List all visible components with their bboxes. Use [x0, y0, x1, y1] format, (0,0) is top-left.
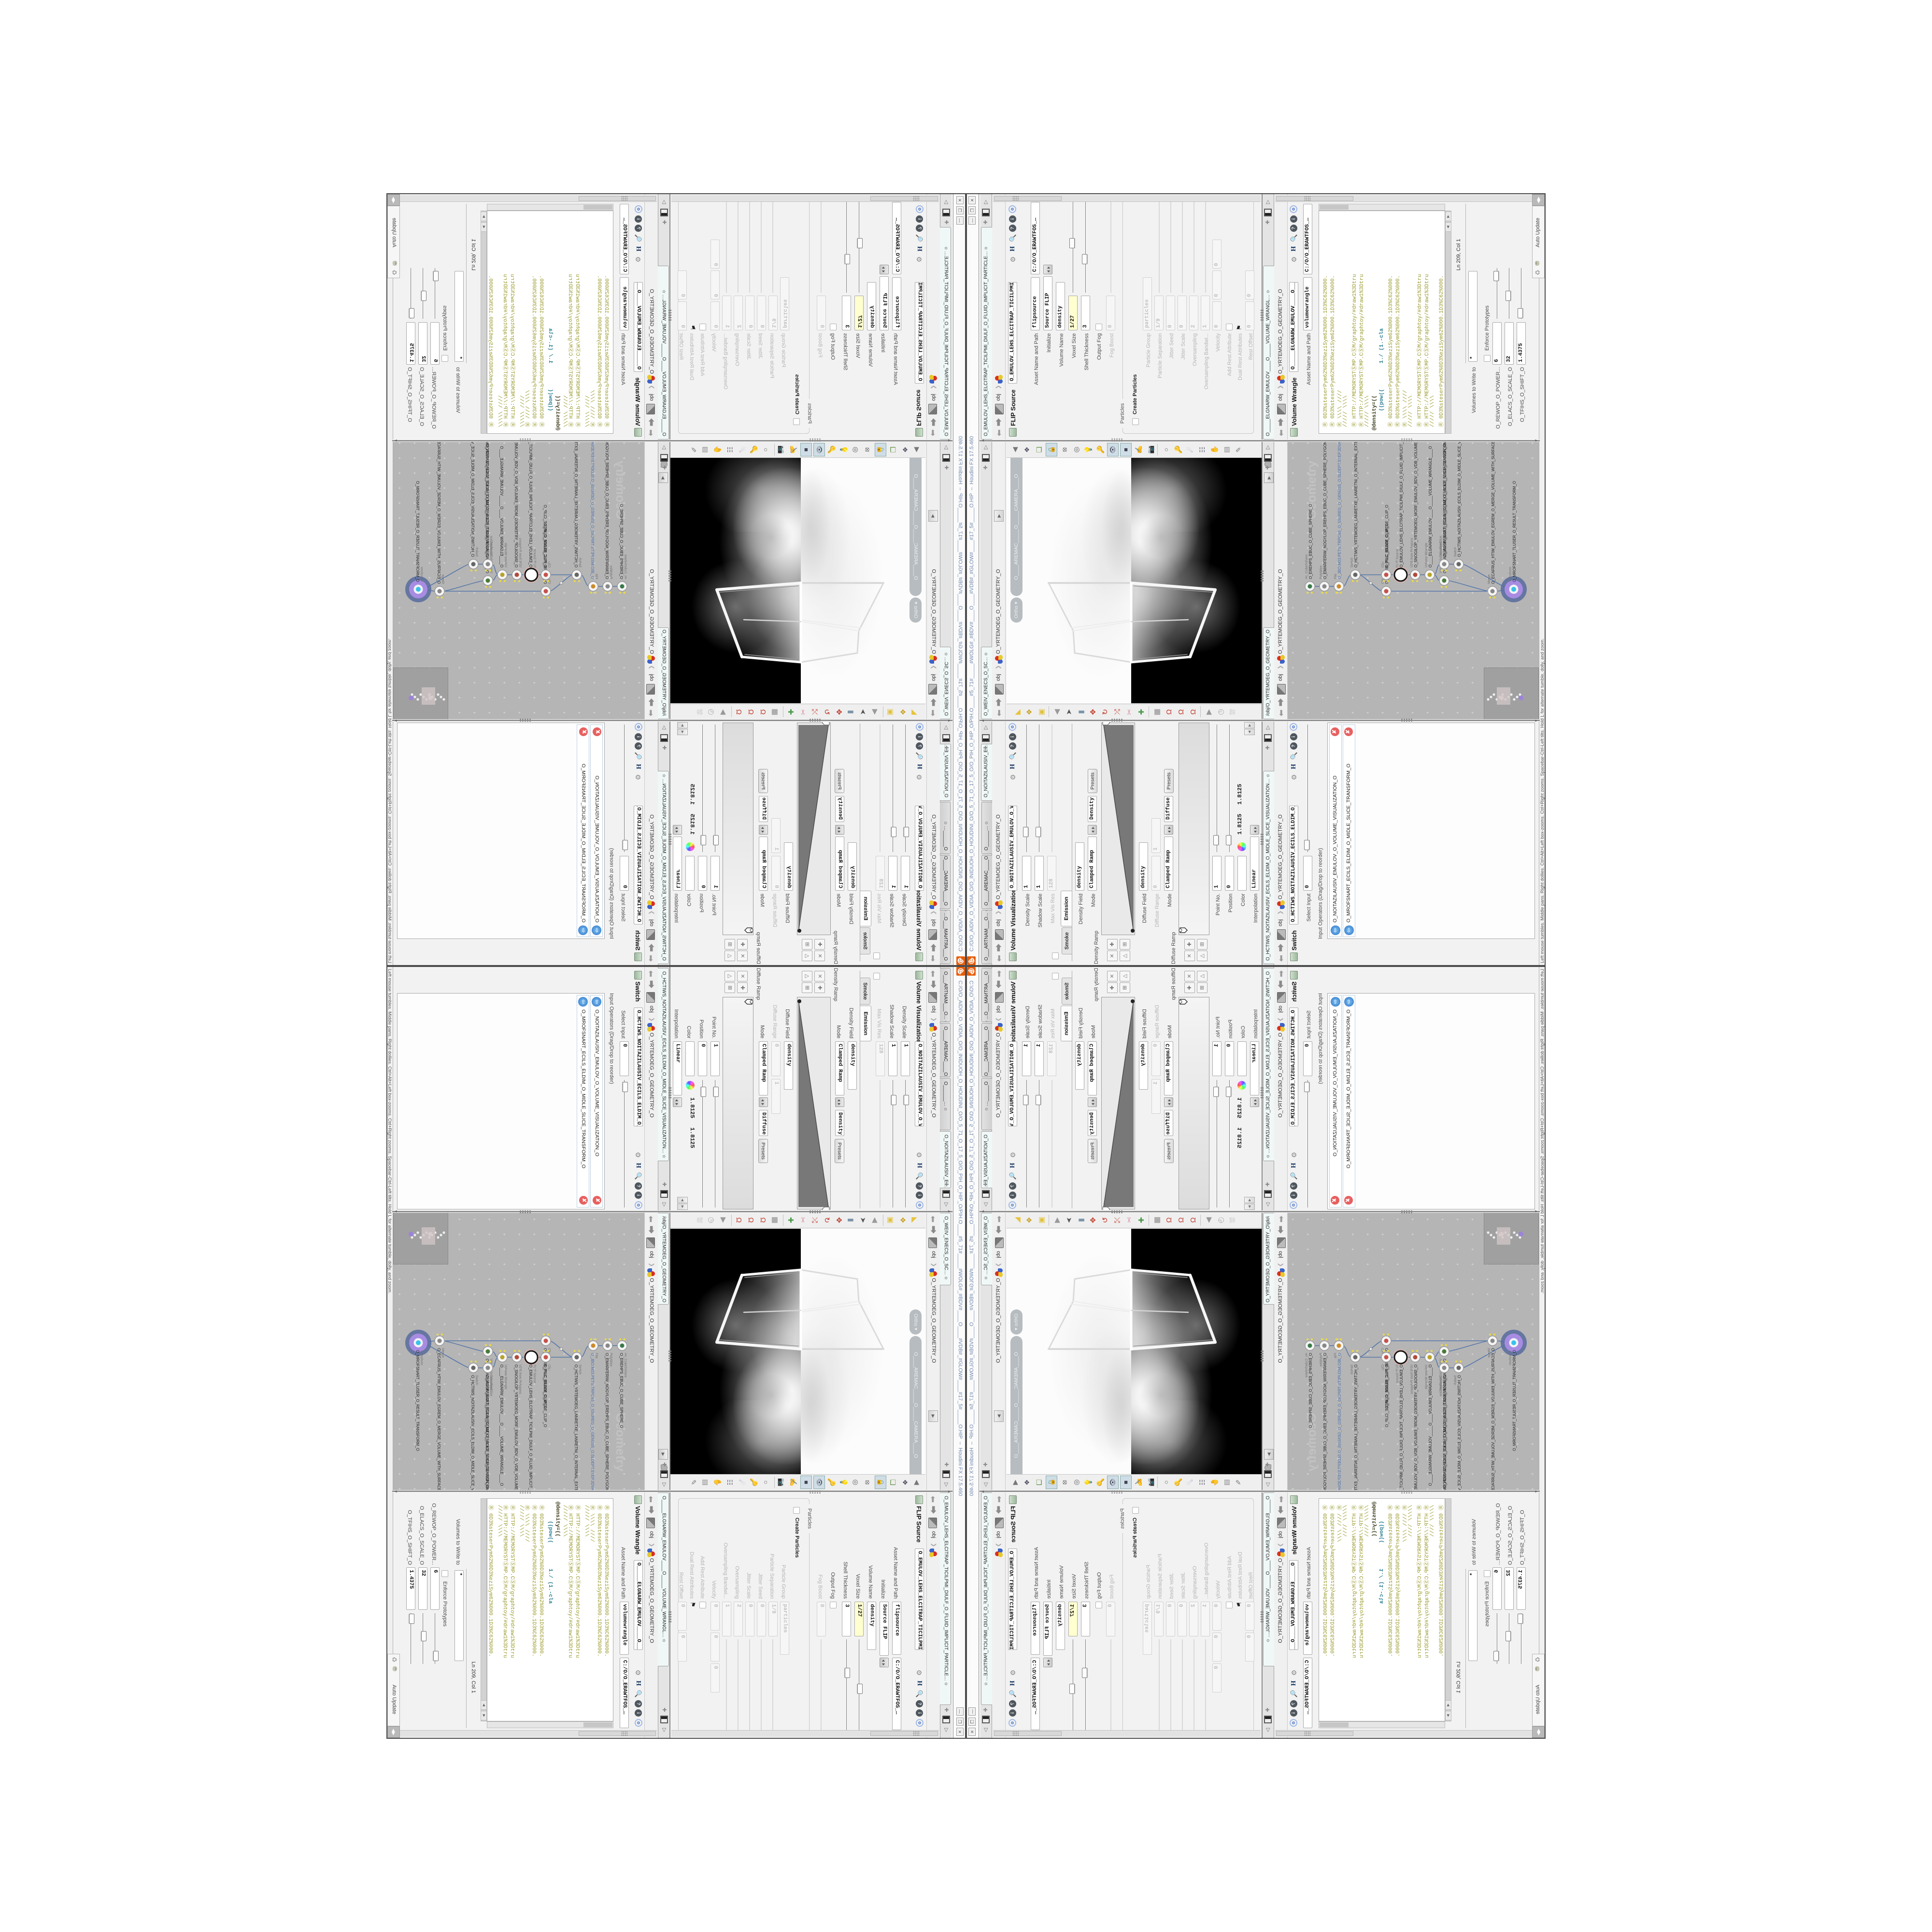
svg-text:+: +: [1291, 577, 1295, 579]
svg-text:+: +: [1350, 607, 1355, 609]
svg-text:+: +: [502, 667, 507, 669]
svg-text:an_CubeSphere: an_CubeSphere: [624, 554, 627, 579]
svg-text:+: +: [1470, 711, 1475, 714]
svg-text:+: +: [1335, 1323, 1340, 1325]
svg-text:+: +: [1470, 472, 1475, 474]
svg-text:+: +: [607, 1278, 611, 1280]
svg-text:+: +: [1291, 682, 1295, 684]
svg-text:+: +: [1291, 442, 1295, 444]
svg-text:+: +: [532, 1218, 537, 1221]
svg-text:+: +: [487, 1278, 492, 1280]
svg-text:+: +: [637, 1338, 641, 1340]
svg-text:+: +: [1485, 1473, 1490, 1475]
svg-text:+: +: [547, 711, 552, 714]
svg-text:VDB from Polygons: VDB from Polygons: [1410, 538, 1414, 568]
svg-text:+: +: [577, 607, 582, 609]
svg-text:+: +: [577, 622, 582, 624]
svg-text:+: +: [547, 547, 552, 549]
svg-text:+: +: [427, 517, 432, 519]
svg-text:+: +: [637, 502, 641, 504]
svg-text:Volume Wrangle: Volume Wrangle: [1425, 1364, 1428, 1389]
svg-text:+: +: [1306, 1488, 1310, 1490]
svg-text:+: +: [592, 1263, 597, 1265]
svg-text:+: +: [1470, 442, 1475, 444]
svg-text:+: +: [1321, 637, 1325, 639]
svg-text:+: +: [622, 1488, 626, 1490]
svg-text:+: +: [1530, 1473, 1535, 1475]
svg-text:+: +: [1530, 1368, 1535, 1370]
svg-text:+: +: [1500, 1278, 1505, 1280]
svg-text:+: +: [1350, 696, 1355, 699]
svg-text:O_HCTIWS_YRTEMOEG_LANRETXE_LAN: O_HCTIWS_YRTEMOEG_LANRETXE_LANRETNI_O_IN…: [1354, 1364, 1358, 1491]
svg-text:O_EREHPS_EBUC_O_CUBE_SPHERE_O: O_EREHPS_EBUC_O_CUBE_SPHERE_O: [1308, 504, 1313, 579]
svg-text:+: +: [622, 1233, 626, 1236]
svg-text:+: +: [472, 667, 477, 669]
svg-text:+: +: [607, 1263, 611, 1265]
svg-text:+: +: [1291, 502, 1295, 504]
svg-text:+: +: [562, 517, 567, 519]
svg-text:+: +: [547, 637, 552, 639]
svg-text:+: +: [1515, 607, 1520, 609]
svg-text:Switch: Switch: [1350, 1364, 1354, 1375]
svg-text:+: +: [457, 517, 462, 519]
svg-text:+: +: [637, 1473, 641, 1475]
svg-text:+: +: [547, 517, 552, 519]
svg-text:+: +: [457, 711, 462, 714]
svg-text:+: +: [1425, 682, 1430, 684]
svg-text:+: +: [562, 1308, 567, 1310]
svg-text:+: +: [562, 1368, 567, 1370]
svg-text:+: +: [1291, 547, 1295, 549]
svg-text:+: +: [562, 607, 567, 609]
svg-text:O_EMARFERIW_NOGYLOP_EREHPS_EBU: O_EMARFERIW_NOGYLOP_EREHPS_EBUC_O_CUBE_S…: [605, 1353, 609, 1491]
svg-text:+: +: [397, 1368, 402, 1370]
svg-text:+: +: [1365, 1413, 1370, 1415]
svg-text:+: +: [1500, 547, 1505, 549]
svg-text:+: +: [577, 1248, 582, 1250]
svg-text:+: +: [457, 667, 462, 669]
svg-text:+: +: [532, 682, 537, 684]
svg-text:+: +: [607, 696, 611, 699]
svg-text:+: +: [1410, 682, 1415, 684]
svg-text:+: +: [1350, 1248, 1355, 1250]
svg-text:+: +: [457, 1278, 462, 1280]
svg-text:+: +: [397, 1428, 402, 1430]
svg-text:+: +: [517, 592, 522, 594]
svg-text:+: +: [502, 1248, 507, 1250]
svg-text:+: +: [607, 1218, 611, 1221]
svg-text:O_HCTIWS_YRTEMOEG_LANRETXE_LAN: O_HCTIWS_YRTEMOEG_LANRETXE_LANRETNI_O_IN…: [574, 441, 578, 568]
svg-text:+: +: [1291, 1413, 1295, 1415]
svg-text:+: +: [412, 652, 417, 654]
svg-text:+: +: [532, 622, 537, 624]
svg-text:+: +: [1321, 1263, 1325, 1265]
svg-text:O_SNOGILOP_YRTEMOEG_MORF_EMULO: O_SNOGILOP_YRTEMOEG_MORF_EMULOV_BDV_O_VD…: [514, 441, 518, 568]
svg-text:+: +: [1455, 682, 1460, 684]
svg-text:+: +: [1455, 1323, 1460, 1325]
svg-text:+: +: [1455, 1308, 1460, 1310]
svg-text:+: +: [1425, 1488, 1430, 1490]
svg-text:+: +: [1335, 607, 1340, 609]
svg-text:+: +: [1335, 1293, 1340, 1295]
svg-text:+: +: [1335, 1233, 1340, 1236]
svg-text:+: +: [1455, 1248, 1460, 1250]
svg-text:+: +: [637, 1293, 641, 1295]
svg-text:+: +: [412, 1308, 417, 1310]
svg-text:+: +: [1425, 1323, 1430, 1325]
svg-text:+: +: [517, 622, 522, 624]
svg-text:+: +: [457, 1473, 462, 1475]
svg-text:+: +: [592, 1248, 597, 1250]
svg-text:+: +: [487, 711, 492, 714]
svg-text:+: +: [1291, 1338, 1295, 1340]
svg-text:+: +: [622, 1473, 626, 1475]
svg-text:+: +: [427, 1368, 432, 1370]
svg-text:+: +: [1440, 1293, 1445, 1295]
svg-text:+: +: [427, 1353, 432, 1355]
svg-text:+: +: [577, 711, 582, 714]
svg-text:+: +: [1500, 472, 1505, 474]
svg-text:+: +: [1321, 1308, 1325, 1310]
svg-text:O_PILC_ELDIM_O_MIDLE_CLIP_O: O_PILC_ELDIM_O_MIDLE_CLIP_O: [1385, 1364, 1389, 1427]
svg-text:+: +: [487, 607, 492, 609]
svg-text:+: +: [1470, 1293, 1475, 1295]
svg-text:+: +: [442, 1308, 447, 1310]
svg-text:+: +: [457, 547, 462, 549]
svg-text:+: +: [1485, 457, 1490, 459]
svg-text:+: +: [1500, 1383, 1505, 1385]
svg-text:+: +: [577, 1263, 582, 1265]
svg-text:+: +: [1530, 577, 1535, 579]
svg-text:+: +: [1335, 1248, 1340, 1250]
svg-text:+: +: [1380, 711, 1385, 714]
svg-text:+: +: [1440, 667, 1445, 669]
svg-text:+: +: [1410, 1308, 1415, 1310]
svg-text:+: +: [1530, 1398, 1535, 1400]
svg-text:+: +: [442, 457, 447, 459]
svg-text:+: +: [1425, 442, 1430, 444]
svg-text:+: +: [397, 1383, 402, 1385]
svg-text:+: +: [1350, 1308, 1355, 1310]
svg-text:File: File: [1334, 1353, 1337, 1358]
svg-text:+: +: [1500, 1488, 1505, 1490]
svg-text:+: +: [1440, 1233, 1445, 1236]
svg-text:+: +: [637, 711, 641, 714]
svg-text:+: +: [1321, 711, 1325, 714]
svg-text:+: +: [397, 472, 402, 474]
svg-text:+: +: [1291, 1293, 1295, 1295]
svg-text:+: +: [637, 577, 641, 579]
svg-text:O_MROFSNART_ECILS_ELDIM_O_MIDL: O_MROFSNART_ECILS_ELDIM_O_MIDLE_SLICE_TR…: [485, 441, 489, 557]
svg-text:+: +: [517, 652, 522, 654]
svg-text:+: +: [1380, 442, 1385, 444]
svg-text:+: +: [1395, 1278, 1400, 1280]
svg-text:+: +: [1485, 637, 1490, 639]
svg-text:+: +: [1365, 1263, 1370, 1265]
svg-text:+: +: [1365, 1218, 1370, 1221]
svg-text:+: +: [637, 667, 641, 669]
svg-text:+: +: [1410, 667, 1415, 669]
svg-text:PolyWire: PolyWire: [609, 1353, 612, 1366]
svg-text:+: +: [1321, 607, 1325, 609]
svg-text:+: +: [562, 696, 567, 699]
svg-text:+: +: [1530, 622, 1535, 624]
svg-text:+: +: [1395, 622, 1400, 624]
svg-text:+: +: [1350, 1233, 1355, 1236]
svg-text:+: +: [592, 637, 597, 639]
svg-text:+: +: [1500, 532, 1505, 534]
svg-text:+: +: [532, 1233, 537, 1236]
svg-text:+: +: [1321, 1248, 1325, 1250]
svg-text:+: +: [457, 487, 462, 489]
svg-text:+: +: [1395, 1308, 1400, 1310]
svg-text:+: +: [1485, 547, 1490, 549]
svg-text:+: +: [1306, 1323, 1310, 1325]
svg-text:+: +: [1350, 667, 1355, 669]
svg-text:+: +: [502, 1338, 507, 1340]
svg-text:+: +: [457, 1323, 462, 1325]
svg-text:+: +: [1500, 652, 1505, 654]
svg-text:+: +: [487, 696, 492, 699]
svg-text:+: +: [1455, 607, 1460, 609]
svg-text:+: +: [1440, 682, 1445, 684]
svg-text:+: +: [1395, 1338, 1400, 1340]
svg-text:+: +: [487, 1263, 492, 1265]
svg-text:+: +: [1365, 472, 1370, 474]
svg-text:+: +: [472, 1338, 477, 1340]
svg-text:+: +: [592, 682, 597, 684]
svg-text:+: +: [472, 577, 477, 579]
svg-text:+: +: [1485, 517, 1490, 519]
svg-text:+: +: [562, 592, 567, 594]
svg-text:+: +: [442, 1443, 447, 1445]
svg-text:+: +: [1380, 696, 1385, 699]
svg-text:+: +: [1291, 517, 1295, 519]
svg-text:+: +: [1425, 622, 1430, 624]
svg-text:+: +: [562, 1398, 567, 1400]
svg-text:+: +: [547, 1383, 552, 1385]
svg-text:+: +: [547, 1263, 552, 1265]
svg-text:+: +: [1530, 562, 1535, 564]
svg-text:+: +: [1470, 1278, 1475, 1280]
svg-text:+: +: [1365, 696, 1370, 699]
svg-text:+: +: [1350, 592, 1355, 594]
svg-text:+: +: [562, 652, 567, 654]
svg-text:+: +: [1321, 667, 1325, 669]
svg-text:+: +: [1470, 1368, 1475, 1370]
svg-text:+: +: [592, 1293, 597, 1295]
svg-text:+: +: [1291, 1488, 1295, 1490]
svg-text:+: +: [547, 502, 552, 504]
svg-text:+: +: [1365, 667, 1370, 669]
svg-text:Switch: Switch: [475, 547, 478, 557]
svg-text:+: +: [1530, 457, 1535, 459]
svg-text:Transform: Transform: [420, 567, 423, 582]
svg-text:O_PILC_ELDIM_O_MIDLE_CLIP_O: O_PILC_ELDIM_O_MIDLE_CLIP_O: [543, 1364, 547, 1427]
svg-text:+: +: [1380, 1248, 1385, 1250]
svg-text:+: +: [502, 1233, 507, 1236]
svg-text:+: +: [1440, 637, 1445, 639]
svg-text:+: +: [487, 1248, 492, 1250]
svg-text:+: +: [1485, 1293, 1490, 1295]
svg-text:+: +: [637, 442, 641, 444]
svg-text:+: +: [1306, 1263, 1310, 1265]
svg-text:+: +: [1365, 1428, 1370, 1430]
svg-text:+: +: [412, 622, 417, 624]
svg-text:+: +: [1500, 562, 1505, 564]
svg-text:+: +: [517, 682, 522, 684]
svg-text:+: +: [547, 1218, 552, 1221]
svg-text:+: +: [592, 622, 597, 624]
svg-text:+: +: [1530, 1353, 1535, 1355]
svg-text:+: +: [547, 457, 552, 459]
svg-text:Transform: Transform: [1439, 541, 1443, 557]
svg-text:+: +: [517, 1308, 522, 1310]
svg-text:+: +: [1306, 607, 1310, 609]
svg-text:+: +: [1380, 1233, 1385, 1236]
svg-text:+: +: [1440, 1218, 1445, 1221]
svg-text:+: +: [412, 1293, 417, 1295]
svg-text:FLIP Source: FLIP Source: [533, 549, 536, 568]
svg-text:VDB from Polygons: VDB from Polygons: [1410, 1364, 1414, 1394]
svg-text:an_CubeSphere: an_CubeSphere: [1305, 554, 1308, 579]
svg-text:+: +: [577, 1218, 582, 1221]
svg-text:+: +: [532, 592, 537, 594]
svg-text:+: +: [457, 442, 462, 444]
svg-text:+: +: [1425, 607, 1430, 609]
svg-text:+: +: [1500, 1458, 1505, 1460]
svg-text:+: +: [457, 1488, 462, 1490]
svg-text:+: +: [1395, 667, 1400, 669]
svg-text:+: +: [1410, 1248, 1415, 1250]
svg-text:+: +: [1365, 1473, 1370, 1475]
svg-text:+: +: [502, 1308, 507, 1310]
svg-text:+: +: [1530, 1338, 1535, 1340]
svg-text:File: File: [595, 1353, 598, 1358]
svg-text:+: +: [622, 637, 626, 639]
svg-text:+: +: [442, 1278, 447, 1280]
svg-text:+: +: [1306, 711, 1310, 714]
svg-text:+: +: [412, 442, 417, 444]
svg-text:+: +: [532, 652, 537, 654]
svg-text:+: +: [622, 622, 626, 624]
svg-text:+: +: [607, 1248, 611, 1250]
svg-text:+: +: [427, 1308, 432, 1310]
svg-text:O_SNOGILOP_YRTEMOEG_MORF_EMULO: O_SNOGILOP_YRTEMOEG_MORF_EMULOV_BDV_O_VD…: [514, 1364, 518, 1491]
svg-text:Merge: Merge: [1488, 1348, 1491, 1358]
svg-text:+: +: [637, 1413, 641, 1415]
svg-text:+: +: [1380, 1278, 1385, 1280]
svg-text:+: +: [1410, 1233, 1415, 1236]
svg-text:+: +: [562, 1383, 567, 1385]
svg-text:+: +: [1530, 1293, 1535, 1295]
svg-text:+: +: [562, 502, 567, 504]
svg-text:+: +: [1395, 652, 1400, 654]
svg-text:Volume Wrangle: Volume Wrangle: [1425, 543, 1428, 568]
svg-text:+: +: [457, 577, 462, 579]
svg-text:+: +: [427, 1488, 432, 1490]
svg-text:+: +: [547, 652, 552, 654]
svg-text:+: +: [1335, 696, 1340, 699]
svg-text:+: +: [457, 1443, 462, 1445]
svg-text:+: +: [1335, 1263, 1340, 1265]
svg-text:+: +: [1380, 502, 1385, 504]
svg-text:+: +: [1500, 1398, 1505, 1400]
svg-text:+: +: [562, 1293, 567, 1295]
svg-text:+: +: [637, 472, 641, 474]
svg-text:+: +: [1291, 1458, 1295, 1460]
svg-text:+: +: [517, 1248, 522, 1250]
svg-text:+: +: [412, 1458, 417, 1460]
svg-text:+: +: [532, 1248, 537, 1250]
svg-text:+: +: [1530, 1413, 1535, 1415]
svg-text:O_PILC_ELDIM_O_MIDLE_CLIP_O: O_PILC_ELDIM_O_MIDLE_CLIP_O: [543, 505, 547, 568]
svg-text:+: +: [637, 622, 641, 624]
svg-text:+: +: [1395, 682, 1400, 684]
svg-text:+: +: [1291, 1323, 1295, 1325]
svg-text:+: +: [397, 1293, 402, 1295]
svg-text:+: +: [577, 696, 582, 699]
svg-text:+: +: [1530, 1443, 1535, 1445]
svg-text:+: +: [1380, 682, 1385, 684]
svg-text:+: +: [532, 1293, 537, 1295]
svg-text:+: +: [412, 1488, 417, 1490]
svg-text:+: +: [1485, 1443, 1490, 1445]
svg-text:O____ELGNARW_EMULOV____O_____V: O____ELGNARW_EMULOV____O_____VOLUME_WRAN…: [1428, 446, 1433, 568]
svg-text:+: +: [457, 1218, 462, 1221]
svg-text:Switch: Switch: [578, 557, 582, 568]
svg-text:+: +: [1410, 1293, 1415, 1295]
svg-text:+: +: [1530, 652, 1535, 654]
svg-text:+: +: [1291, 1248, 1295, 1250]
svg-text:+: +: [592, 1233, 597, 1236]
svg-text:+: +: [562, 1233, 567, 1236]
svg-text:+: +: [457, 1293, 462, 1295]
svg-text:+: +: [1440, 1248, 1445, 1250]
svg-text:O_HCTIWS_NOITAZILAUSIV_ECILS_E: O_HCTIWS_NOITAZILAUSIV_ECILS_ELDIM_O_MID…: [1457, 441, 1462, 557]
svg-text:VDB from Polygons: VDB from Polygons: [518, 1364, 522, 1394]
svg-text:+: +: [562, 457, 567, 459]
svg-text:+: +: [457, 652, 462, 654]
svg-text:File: File: [595, 574, 598, 579]
svg-text:+: +: [502, 1278, 507, 1280]
svg-text:+: +: [1425, 652, 1430, 654]
svg-text:+: +: [442, 487, 447, 489]
svg-text:+: +: [577, 1323, 582, 1325]
svg-text:+: +: [1291, 1428, 1295, 1430]
svg-text:+: +: [1455, 1233, 1460, 1236]
svg-text:+: +: [1395, 696, 1400, 699]
svg-text:+: +: [1530, 1278, 1535, 1280]
svg-text:+: +: [622, 442, 626, 444]
svg-text:+: +: [1530, 1458, 1535, 1460]
svg-text:+: +: [457, 696, 462, 699]
svg-text:+: +: [607, 667, 611, 669]
svg-text:+: +: [1425, 696, 1430, 699]
svg-text:+: +: [1500, 517, 1505, 519]
svg-text:+: +: [1500, 1293, 1505, 1295]
svg-text:+: +: [1455, 1278, 1460, 1280]
svg-text:+: +: [1365, 637, 1370, 639]
svg-text:+: +: [427, 652, 432, 654]
svg-text:PolyWire: PolyWire: [609, 566, 612, 579]
svg-text:+: +: [637, 1428, 641, 1430]
svg-text:+: +: [1440, 1278, 1445, 1280]
svg-text:+: +: [427, 1278, 432, 1280]
svg-text:+: +: [1410, 607, 1415, 609]
svg-text:+: +: [1515, 1473, 1520, 1475]
svg-text:+: +: [427, 1458, 432, 1460]
